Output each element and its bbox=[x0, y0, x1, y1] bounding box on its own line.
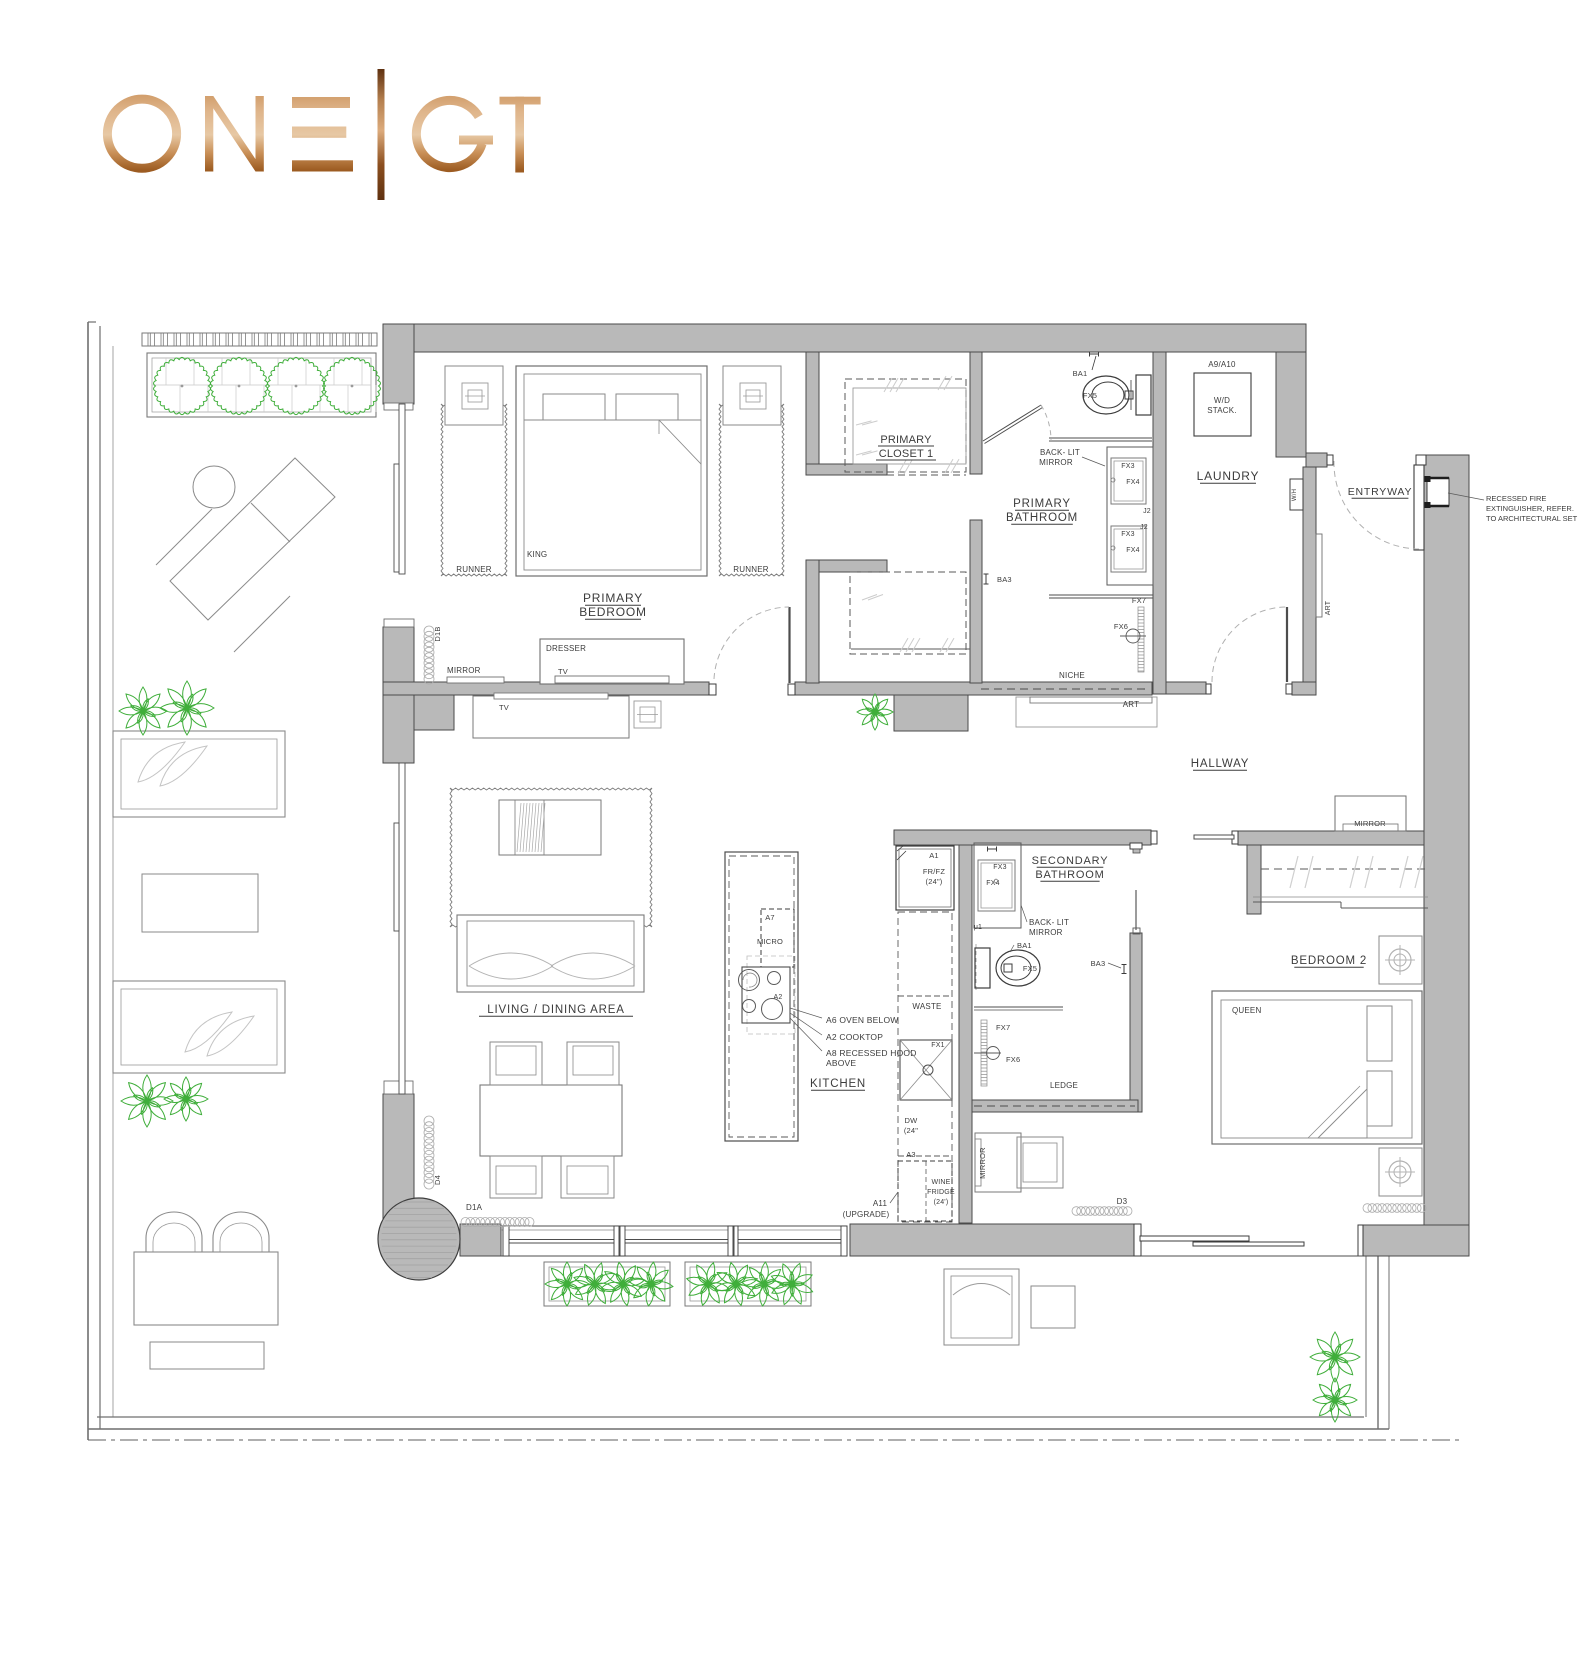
svg-text:J2: J2 bbox=[1140, 524, 1148, 531]
svg-text:MIRROR: MIRROR bbox=[447, 666, 481, 675]
svg-text:ABOVE: ABOVE bbox=[826, 1058, 856, 1068]
svg-text:TV: TV bbox=[558, 667, 568, 676]
svg-text:FX6: FX6 bbox=[1006, 1055, 1020, 1064]
svg-text:A6 OVEN BELOW: A6 OVEN BELOW bbox=[826, 1015, 899, 1025]
svg-text:LAUNDRY: LAUNDRY bbox=[1197, 469, 1260, 483]
svg-text:PRIMARY: PRIMARY bbox=[1013, 498, 1071, 510]
svg-text:D3: D3 bbox=[1117, 1197, 1128, 1206]
svg-text:A8 RECESSED HOOD: A8 RECESSED HOOD bbox=[826, 1048, 917, 1058]
svg-text:A9/A10: A9/A10 bbox=[1208, 360, 1236, 369]
svg-text:BA3: BA3 bbox=[1091, 959, 1106, 968]
svg-text:BA1: BA1 bbox=[1017, 941, 1032, 950]
svg-text:RUNNER: RUNNER bbox=[733, 565, 768, 574]
svg-text:A3: A3 bbox=[906, 1150, 916, 1159]
svg-text:FX3: FX3 bbox=[993, 864, 1006, 871]
svg-text:μ1: μ1 bbox=[974, 924, 982, 931]
svg-text:FRIDGE: FRIDGE bbox=[927, 1189, 955, 1196]
svg-text:D1A: D1A bbox=[466, 1203, 483, 1212]
svg-text:ENTRYWAY: ENTRYWAY bbox=[1348, 486, 1413, 498]
svg-text:NICHE: NICHE bbox=[1059, 671, 1085, 680]
svg-text:FX6: FX6 bbox=[1114, 622, 1128, 631]
svg-text:FX5: FX5 bbox=[1023, 964, 1037, 973]
svg-text:FX7: FX7 bbox=[996, 1023, 1010, 1032]
svg-text:QUEEN: QUEEN bbox=[1232, 1006, 1261, 1015]
svg-text:FX1: FX1 bbox=[931, 1042, 944, 1049]
svg-text:(24": (24" bbox=[904, 1126, 918, 1135]
svg-text:CLOSET 1: CLOSET 1 bbox=[879, 448, 934, 460]
svg-text:BACK- LIT: BACK- LIT bbox=[1029, 918, 1069, 927]
svg-text:A2: A2 bbox=[774, 994, 783, 1001]
svg-text:PRIMARY: PRIMARY bbox=[880, 434, 932, 446]
svg-text:W/D: W/D bbox=[1214, 396, 1230, 405]
svg-text:A2 COOKTOP: A2 COOKTOP bbox=[826, 1032, 883, 1042]
svg-text:TO ARCHITECTURAL SET: TO ARCHITECTURAL SET bbox=[1486, 514, 1578, 523]
svg-text:W/H: W/H bbox=[1292, 489, 1298, 501]
svg-text:HALLWAY: HALLWAY bbox=[1191, 758, 1249, 770]
svg-text:FR/FZ: FR/FZ bbox=[923, 867, 945, 876]
svg-text:BACK- LIT: BACK- LIT bbox=[1040, 448, 1080, 457]
svg-text:(UPGRADE): (UPGRADE) bbox=[843, 1210, 890, 1219]
svg-text:(24'): (24') bbox=[934, 1199, 949, 1206]
svg-text:KING: KING bbox=[527, 550, 547, 559]
svg-text:DW: DW bbox=[905, 1116, 919, 1125]
svg-text:LIVING / DINING AREA: LIVING / DINING AREA bbox=[487, 1004, 624, 1016]
svg-text:BATHROOM: BATHROOM bbox=[1006, 512, 1078, 524]
svg-text:ART: ART bbox=[1325, 600, 1332, 615]
svg-text:BA3: BA3 bbox=[997, 575, 1012, 584]
svg-text:A11: A11 bbox=[873, 1199, 888, 1208]
svg-text:MIRROR: MIRROR bbox=[1039, 458, 1073, 467]
svg-text:FX3: FX3 bbox=[1121, 463, 1134, 470]
svg-text:FX3: FX3 bbox=[1121, 531, 1134, 538]
svg-text:FX7: FX7 bbox=[1132, 596, 1146, 605]
svg-text:A7: A7 bbox=[765, 913, 775, 922]
svg-text:RUNNER: RUNNER bbox=[456, 565, 491, 574]
svg-text:D1B: D1B bbox=[433, 626, 442, 641]
svg-text:FX4: FX4 bbox=[1126, 547, 1139, 554]
svg-text:BA1: BA1 bbox=[1073, 369, 1088, 378]
svg-text:A1: A1 bbox=[929, 851, 939, 860]
svg-text:BEDROOM: BEDROOM bbox=[579, 605, 647, 619]
svg-text:KITCHEN: KITCHEN bbox=[810, 1078, 866, 1090]
svg-text:D4: D4 bbox=[433, 1175, 442, 1185]
svg-text:RECESSED FIRE: RECESSED FIRE bbox=[1486, 494, 1546, 503]
svg-text:ART: ART bbox=[1123, 700, 1139, 709]
svg-text:WASTE: WASTE bbox=[912, 1002, 941, 1011]
svg-text:WINE: WINE bbox=[931, 1179, 950, 1186]
svg-text:MIRROR: MIRROR bbox=[1354, 819, 1386, 828]
svg-text:FX5: FX5 bbox=[1083, 391, 1097, 400]
svg-text:LEDGE: LEDGE bbox=[1050, 1081, 1078, 1090]
svg-text:DRESSER: DRESSER bbox=[546, 644, 586, 653]
svg-text:TV: TV bbox=[499, 703, 509, 712]
svg-text:PRIMARY: PRIMARY bbox=[583, 591, 643, 605]
svg-text:SECONDARY: SECONDARY bbox=[1032, 855, 1109, 867]
svg-text:FX4: FX4 bbox=[1126, 479, 1139, 486]
svg-text:BATHROOM: BATHROOM bbox=[1035, 869, 1104, 881]
svg-text:EXTINGUISHER, REFER.: EXTINGUISHER, REFER. bbox=[1486, 504, 1574, 513]
svg-text:MIRROR: MIRROR bbox=[978, 1147, 987, 1179]
svg-text:(24"): (24") bbox=[926, 877, 943, 886]
svg-text:J2: J2 bbox=[1143, 508, 1151, 515]
svg-text:MIRROR: MIRROR bbox=[1029, 928, 1063, 937]
svg-text:STACK.: STACK. bbox=[1207, 406, 1237, 415]
svg-text:MICRO: MICRO bbox=[757, 937, 783, 946]
svg-text:BEDROOM 2: BEDROOM 2 bbox=[1291, 955, 1367, 967]
